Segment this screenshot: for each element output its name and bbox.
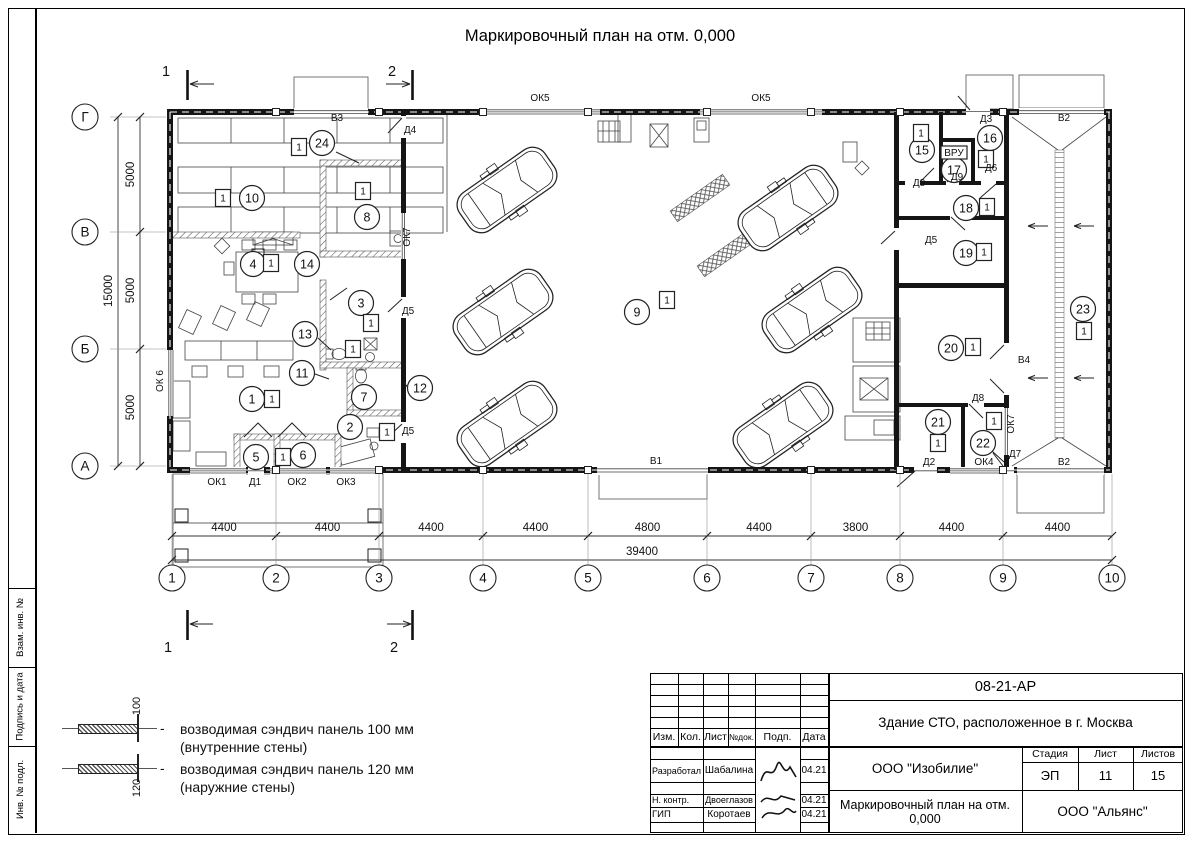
row-date-2: 04.21 bbox=[800, 808, 828, 822]
row-date-0: 04.21 bbox=[800, 762, 828, 780]
strip-cell-podpis: Подпись и дата bbox=[8, 667, 35, 746]
signature bbox=[757, 790, 799, 824]
row-role-2: ГИП bbox=[652, 808, 703, 822]
col-data: Дата bbox=[800, 729, 828, 746]
col-list: Лист bbox=[703, 729, 728, 746]
frame-inner-line bbox=[35, 8, 37, 833]
row-name-0: Шабалина bbox=[703, 762, 755, 780]
drawing-title: Маркировочный план на отм. 0,000 bbox=[838, 791, 1012, 833]
legend-dim-120: 120 bbox=[131, 779, 143, 797]
sheets-label: Листов bbox=[1133, 747, 1183, 762]
stage-label: Стадия bbox=[1022, 747, 1078, 762]
row-role-1: Н. контр. bbox=[652, 794, 703, 807]
col-kol: Кол. bbox=[678, 729, 703, 746]
row-name-1: Двоеглазов bbox=[703, 794, 755, 807]
legend-wall-symbol-100 bbox=[78, 724, 138, 734]
page-title: Маркировочный план на отм. 0,000 bbox=[420, 25, 780, 47]
legend-text-100: возводимая сэндвич панель 100 мм (внутре… bbox=[180, 721, 480, 756]
legend-text-120: возводимая сэндвич панель 120 мм (наружн… bbox=[180, 761, 480, 796]
drawing-sheet: 1 2 1 2 12345678910440044004400440048004… bbox=[0, 0, 1191, 842]
legend-dim-100: 100 bbox=[131, 697, 143, 715]
col-izm: Изм. bbox=[650, 729, 678, 746]
sheet-value: 11 bbox=[1078, 762, 1133, 790]
project-name: Здание СТО, расположенное в г. Москва bbox=[828, 700, 1183, 746]
sheet-label: Лист bbox=[1078, 747, 1133, 762]
contractor-name: ООО "Альянс" bbox=[1022, 791, 1183, 833]
legend-wall-symbol-120 bbox=[78, 764, 138, 774]
stage-value: ЭП bbox=[1022, 762, 1078, 790]
row-date-1: 04.21 bbox=[800, 794, 828, 807]
col-ndok: №док. bbox=[728, 729, 755, 746]
sheets-value: 15 bbox=[1133, 762, 1183, 790]
signature bbox=[757, 757, 799, 787]
company-name: ООО "Изобилие" bbox=[828, 747, 1022, 790]
doc-number: 08-21-АР bbox=[828, 674, 1183, 700]
row-role-0: Разработал bbox=[652, 762, 703, 780]
strip-cell-vzam: Взам. инв. № bbox=[8, 588, 35, 667]
col-podp: Подп. bbox=[755, 729, 800, 746]
strip-cell-inv: Инв. № подл. bbox=[8, 746, 35, 833]
row-name-2: Коротаев bbox=[703, 808, 755, 822]
